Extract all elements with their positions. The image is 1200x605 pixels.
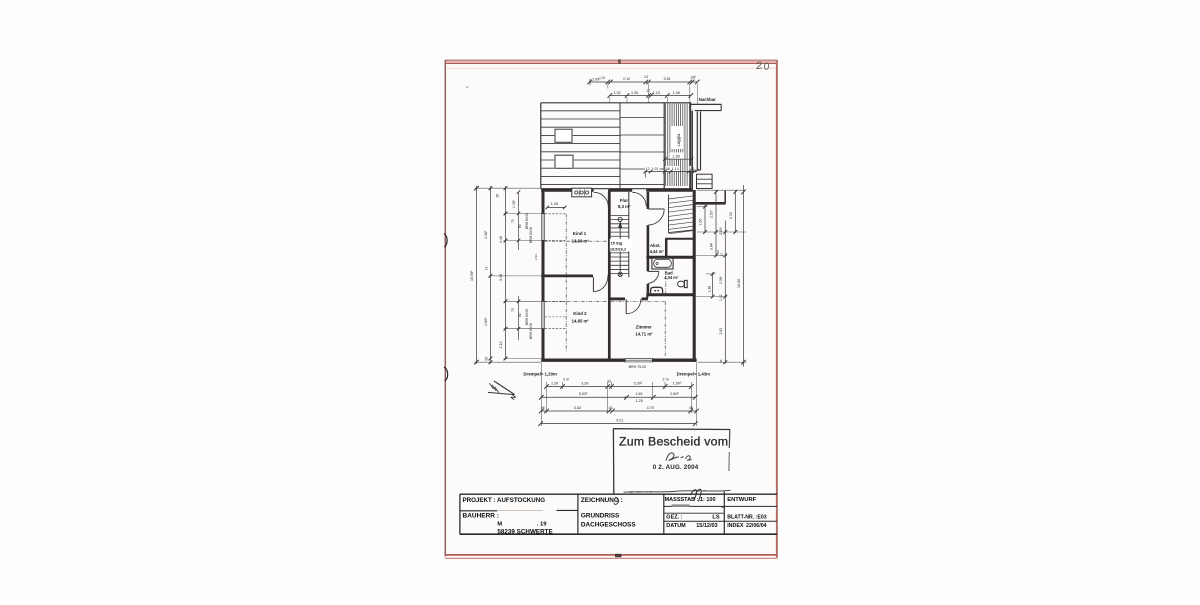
svg-text:1.01: 1.01 [651, 167, 658, 171]
svg-text:2.63⁵: 2.63⁵ [719, 226, 723, 235]
svg-text:3.49: 3.49 [499, 274, 503, 281]
svg-text:2.63: 2.63 [534, 254, 538, 260]
svg-text:58239 SCHWERTE: 58239 SCHWERTE [497, 529, 552, 536]
svg-text:4,34 m²: 4,34 m² [664, 275, 679, 280]
svg-text:Abst.: Abst. [650, 243, 660, 248]
svg-text:36: 36 [719, 359, 723, 363]
svg-text:INDEX: INDEX [727, 523, 744, 529]
svg-text:1.08⁵: 1.08⁵ [512, 199, 516, 208]
svg-text:3.84: 3.84 [710, 243, 714, 250]
svg-text:13: 13 [484, 266, 488, 270]
svg-text:2.36⁵: 2.36⁵ [719, 275, 723, 284]
svg-text:80: 80 [518, 313, 522, 317]
svg-text:1.12: 1.12 [719, 294, 723, 301]
svg-text:1.50⁵: 1.50⁵ [673, 381, 682, 385]
svg-text:4.38⁵: 4.38⁵ [484, 230, 488, 239]
svg-text:1.02: 1.02 [614, 91, 621, 95]
svg-text:LS: LS [712, 514, 719, 520]
svg-text:18,5/26,2: 18,5/26,2 [610, 247, 627, 252]
svg-text:GRUNDRISS: GRUNDRISS [581, 513, 620, 520]
svg-text:1.30: 1.30 [631, 91, 638, 95]
svg-text:DACHGESCHOSS: DACHGESCHOSS [581, 522, 636, 529]
svg-text:Kind 1: Kind 1 [573, 231, 587, 236]
svg-text:1.25: 1.25 [636, 399, 643, 403]
svg-text:Zimmer: Zimmer [636, 325, 652, 330]
svg-text:M: M [497, 522, 502, 528]
svg-text:80: 80 [518, 224, 522, 228]
svg-text:06: 06 [484, 357, 488, 361]
svg-text:17: 17 [646, 89, 650, 93]
svg-text:Drempel= 1,20m: Drempel= 1,20m [523, 372, 557, 377]
svg-text:Flur: Flur [620, 198, 629, 203]
svg-text:BRH 75.00: BRH 75.00 [629, 365, 647, 369]
svg-text:2.62: 2.62 [719, 328, 723, 335]
svg-text:06: 06 [541, 406, 545, 410]
svg-text:BAUHERR :: BAUHERR : [463, 512, 499, 519]
svg-text:1.50: 1.50 [673, 154, 681, 159]
svg-text:13,80 m²: 13,80 m² [572, 239, 590, 244]
svg-text:4,44 m²: 4,44 m² [650, 249, 665, 254]
svg-text:10.60: 10.60 [737, 279, 741, 288]
svg-text:1.00: 1.00 [699, 219, 703, 226]
svg-text:2.13: 2.13 [499, 342, 503, 349]
svg-text:14,65 m²: 14,65 m² [572, 318, 590, 323]
svg-text:3.28: 3.28 [581, 381, 588, 385]
svg-text:26: 26 [716, 250, 720, 254]
svg-text:14,71 m²: 14,71 m² [635, 332, 653, 337]
svg-text:1.38: 1.38 [673, 91, 680, 95]
svg-text:15 Stg: 15 Stg [611, 241, 623, 246]
svg-text:BRH 60.00: BRH 60.00 [525, 309, 529, 325]
svg-text:1.13: 1.13 [653, 91, 660, 95]
svg-text:1.09⁵: 1.09⁵ [592, 78, 601, 82]
svg-text:8,3 m²: 8,3 m² [618, 204, 631, 209]
svg-text:1.09: 1.09 [551, 202, 558, 206]
svg-text:3.30⁵: 3.30⁵ [634, 381, 643, 385]
svg-text:ENTWURF: ENTWURF [727, 497, 756, 503]
svg-text:10.59⁵: 10.59⁵ [470, 270, 474, 281]
svg-text:75: 75 [511, 219, 515, 223]
svg-text:2 m: 2 m [662, 377, 668, 381]
svg-text:2.50⁵: 2.50⁵ [710, 209, 714, 218]
svg-text:13: 13 [644, 75, 648, 79]
svg-text:Nachbar: Nachbar [699, 97, 717, 102]
svg-text:0 2. AUG. 2004: 0 2. AUG. 2004 [653, 464, 699, 471]
svg-text:3.82: 3.82 [574, 406, 581, 410]
svg-text:36⁵: 36⁵ [691, 76, 697, 80]
svg-text:36: 36 [496, 194, 500, 198]
svg-text:12: 12 [719, 253, 723, 257]
svg-text:1.62: 1.62 [635, 392, 642, 396]
svg-text:Kind 2: Kind 2 [573, 311, 587, 316]
svg-text:2.12: 2.12 [623, 77, 630, 81]
svg-text:1.14: 1.14 [672, 167, 679, 171]
svg-text:BLATT-NR. :E03: BLATT-NR. :E03 [727, 514, 767, 520]
svg-text:4.40: 4.40 [499, 236, 503, 243]
svg-text:15/12/03: 15/12/03 [696, 523, 717, 529]
svg-text:75: 75 [511, 308, 515, 312]
svg-text:4.70: 4.70 [647, 406, 654, 410]
svg-text:06: 06 [689, 406, 693, 410]
svg-text:4.60⁵: 4.60⁵ [484, 317, 488, 326]
svg-text:BRH 60.00: BRH 60.00 [525, 213, 529, 229]
svg-text:22/06/04: 22/06/04 [746, 523, 767, 529]
svg-text:ZEICHNUNG :: ZEICHNUNG : [581, 497, 623, 504]
svg-text:06: 06 [666, 167, 670, 171]
svg-text:33: 33 [607, 380, 611, 384]
svg-text:PROJEKT : AUFSTOCKUNG: PROJEKT : AUFSTOCKUNG [463, 497, 546, 504]
svg-text:1.20: 1.20 [551, 381, 558, 385]
svg-text:GEZ. :: GEZ. : [666, 514, 682, 520]
svg-text:DATUM: DATUM [666, 523, 686, 529]
svg-text:. 19: . 19 [537, 522, 547, 528]
svg-text:Zum Bescheid vom: Zum Bescheid vom [619, 434, 728, 448]
svg-text:13: 13 [601, 76, 605, 80]
svg-text:1.38: 1.38 [707, 286, 711, 293]
svg-text:3.51: 3.51 [664, 77, 671, 81]
svg-text:Loggia: Loggia [676, 133, 681, 147]
svg-text:5.03⁵: 5.03⁵ [579, 392, 588, 396]
svg-text:2.32: 2.32 [729, 212, 733, 219]
svg-text:BRH 80.00: BRH 80.00 [529, 323, 533, 339]
svg-text:9.21: 9.21 [616, 419, 623, 423]
svg-text:43: 43 [609, 406, 613, 410]
svg-text:Drempel= 1,43m: Drempel= 1,43m [677, 372, 711, 377]
svg-text:2 m: 2 m [563, 377, 569, 381]
svg-text:26: 26 [691, 168, 695, 172]
svg-text:2.60⁵: 2.60⁵ [670, 392, 679, 396]
svg-text:MASSSTAB : 1: 100: MASSSTAB : 1: 100 [665, 497, 716, 503]
